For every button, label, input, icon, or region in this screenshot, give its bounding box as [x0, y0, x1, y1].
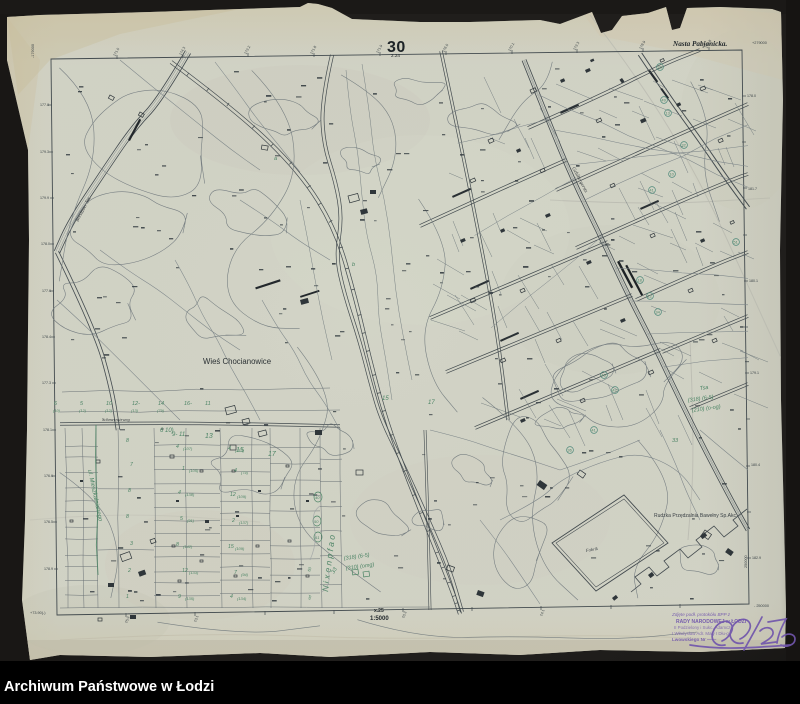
svg-text:2: 2 — [231, 518, 235, 524]
svg-text:(91): (91) — [187, 518, 195, 523]
svg-text:179.9: 179.9 — [40, 196, 49, 200]
svg-text:2.24: 2.24 — [391, 53, 400, 58]
svg-text:182.9: 182.9 — [752, 556, 761, 560]
svg-text:b: b — [352, 262, 355, 268]
svg-text:178.4: 178.4 — [42, 335, 51, 339]
svg-text:Nasta Pabjanicka.: Nasta Pabjanicka. — [672, 40, 728, 48]
svg-text:Wieś Chocianowice: Wieś Chocianowice — [203, 357, 271, 366]
svg-text:(13): (13) — [131, 408, 139, 413]
svg-text:1: 1 — [126, 594, 129, 600]
svg-text:36: 36 — [567, 448, 572, 453]
svg-text:4: 4 — [230, 594, 233, 600]
svg-text:4: 4 — [176, 444, 179, 450]
svg-text:Tsa: Tsa — [699, 385, 708, 392]
svg-text:41: 41 — [591, 428, 596, 433]
svg-text:50: 50 — [314, 519, 319, 524]
svg-text:15: 15 — [382, 396, 389, 402]
svg-text:177.6: 177.6 — [42, 289, 51, 293]
svg-text:(109): (109) — [237, 494, 247, 499]
svg-text:42: 42 — [612, 388, 617, 393]
svg-text:(74): (74) — [241, 470, 249, 475]
svg-text:13: 13 — [665, 111, 670, 116]
svg-text:4: 4 — [234, 468, 237, 474]
svg-text:13: 13 — [205, 433, 213, 440]
svg-text:17: 17 — [268, 451, 277, 458]
svg-text:38: 38 — [657, 65, 662, 70]
svg-text:12: 12 — [230, 492, 236, 498]
svg-text:(142): (142) — [183, 544, 193, 549]
svg-text:5: 5 — [180, 516, 183, 522]
svg-text:180.4: 180.4 — [751, 463, 760, 467]
svg-text:179.1: 179.1 — [750, 371, 759, 375]
svg-text:178.9: 178.9 — [44, 567, 53, 571]
svg-text:(138): (138) — [185, 492, 195, 497]
svg-text:11: 11 — [205, 401, 211, 407]
svg-text:178.0: 178.0 — [41, 242, 50, 246]
svg-text:(137): (137) — [239, 520, 249, 525]
svg-text:+279000: +279000 — [752, 41, 767, 45]
svg-text:177.3: 177.3 — [42, 381, 51, 385]
svg-text:22: 22 — [647, 294, 652, 299]
svg-text:17: 17 — [428, 400, 435, 406]
svg-text:16-: 16- — [184, 401, 192, 407]
svg-text:x.25: x.25 — [374, 608, 384, 614]
svg-text:9: 9 — [178, 594, 181, 600]
svg-text:45: 45 — [601, 373, 606, 378]
svg-text:15: 15 — [228, 544, 234, 550]
svg-text:12: 12 — [182, 568, 188, 574]
svg-text:(107): (107) — [183, 446, 193, 451]
svg-text:176.5: 176.5 — [44, 520, 53, 524]
svg-text:179.3: 179.3 — [40, 150, 49, 154]
svg-text:250000: 250000 — [744, 555, 748, 568]
svg-text:8: 8 — [128, 488, 131, 494]
svg-text:12-: 12- — [132, 401, 140, 407]
svg-text:+73.90(-): +73.90(-) — [30, 611, 46, 615]
svg-text:32: 32 — [681, 143, 686, 148]
svg-text:(79): (79) — [157, 408, 165, 413]
svg-text:(135): (135) — [185, 596, 195, 601]
svg-text:10: 10 — [669, 172, 674, 177]
svg-text:I Władysław Adr. Mały I Dłu-go: I Władysław Adr. Mały I Dłu-go — [672, 631, 732, 636]
svg-text:14: 14 — [158, 401, 164, 407]
svg-text:178.0: 178.0 — [747, 94, 756, 98]
svg-text:(12): (12) — [79, 408, 87, 413]
svg-text:Zdjęte podł. protokółu BPP z: Zdjęte podł. protokółu BPP z — [671, 612, 731, 617]
svg-text:8: 8 — [126, 514, 129, 520]
svg-text:8: 8 — [176, 542, 179, 548]
svg-text:10: 10 — [106, 401, 113, 407]
svg-text:51: 51 — [733, 240, 738, 245]
svg-text:9- 11: 9- 11 — [172, 432, 185, 438]
svg-text:3: 3 — [130, 541, 133, 547]
svg-text:II Podzielony i Sukc. Adamczy: II Podzielony i Sukc. Adamczy — [674, 625, 733, 630]
svg-text:a: a — [274, 156, 277, 162]
svg-text:4: 4 — [178, 490, 181, 496]
svg-text:Archiwum Państwowe w Łodzi: Archiwum Państwowe w Łodzi — [4, 679, 214, 695]
svg-text:Rudzka Przędzalnia Bawełny Sp.: Rudzka Przędzalnia Bawełny Sp.Akc. — [654, 513, 737, 519]
svg-text:Schmernstrweg: Schmernstrweg — [102, 417, 130, 422]
svg-text:4: 4 — [228, 446, 231, 452]
svg-text:180.1: 180.1 — [749, 279, 758, 283]
svg-text:(105): (105) — [189, 468, 199, 473]
svg-text:40: 40 — [315, 495, 320, 500]
svg-text:178.1: 178.1 — [43, 428, 52, 432]
svg-text:176.6: 176.6 — [44, 474, 53, 478]
svg-text:(134): (134) — [237, 596, 247, 601]
svg-text:8: 8 — [126, 438, 129, 444]
svg-text:15: 15 — [236, 447, 244, 454]
svg-text:(109): (109) — [235, 546, 245, 551]
svg-text:- 250000: - 250000 — [754, 604, 769, 608]
svg-text:49: 49 — [661, 98, 666, 103]
svg-text:1: 1 — [182, 466, 185, 472]
svg-text:(10): (10) — [53, 408, 61, 413]
svg-text:177.8: 177.8 — [40, 103, 49, 107]
svg-text:34: 34 — [655, 310, 660, 315]
svg-text:(12): (12) — [105, 408, 113, 413]
svg-text:1:5000: 1:5000 — [370, 616, 389, 622]
svg-text:41: 41 — [649, 188, 654, 193]
svg-text:(133): (133) — [189, 570, 199, 575]
svg-text:18: 18 — [637, 278, 642, 283]
svg-text:-179000: -179000 — [31, 44, 35, 58]
svg-text:2: 2 — [127, 568, 131, 574]
svg-text:Lwowskiego Nr ——: Lwowskiego Nr —— — [672, 637, 717, 642]
svg-text:33: 33 — [672, 438, 679, 444]
svg-text:181.7: 181.7 — [748, 187, 757, 191]
svg-text:(94): (94) — [241, 572, 249, 577]
